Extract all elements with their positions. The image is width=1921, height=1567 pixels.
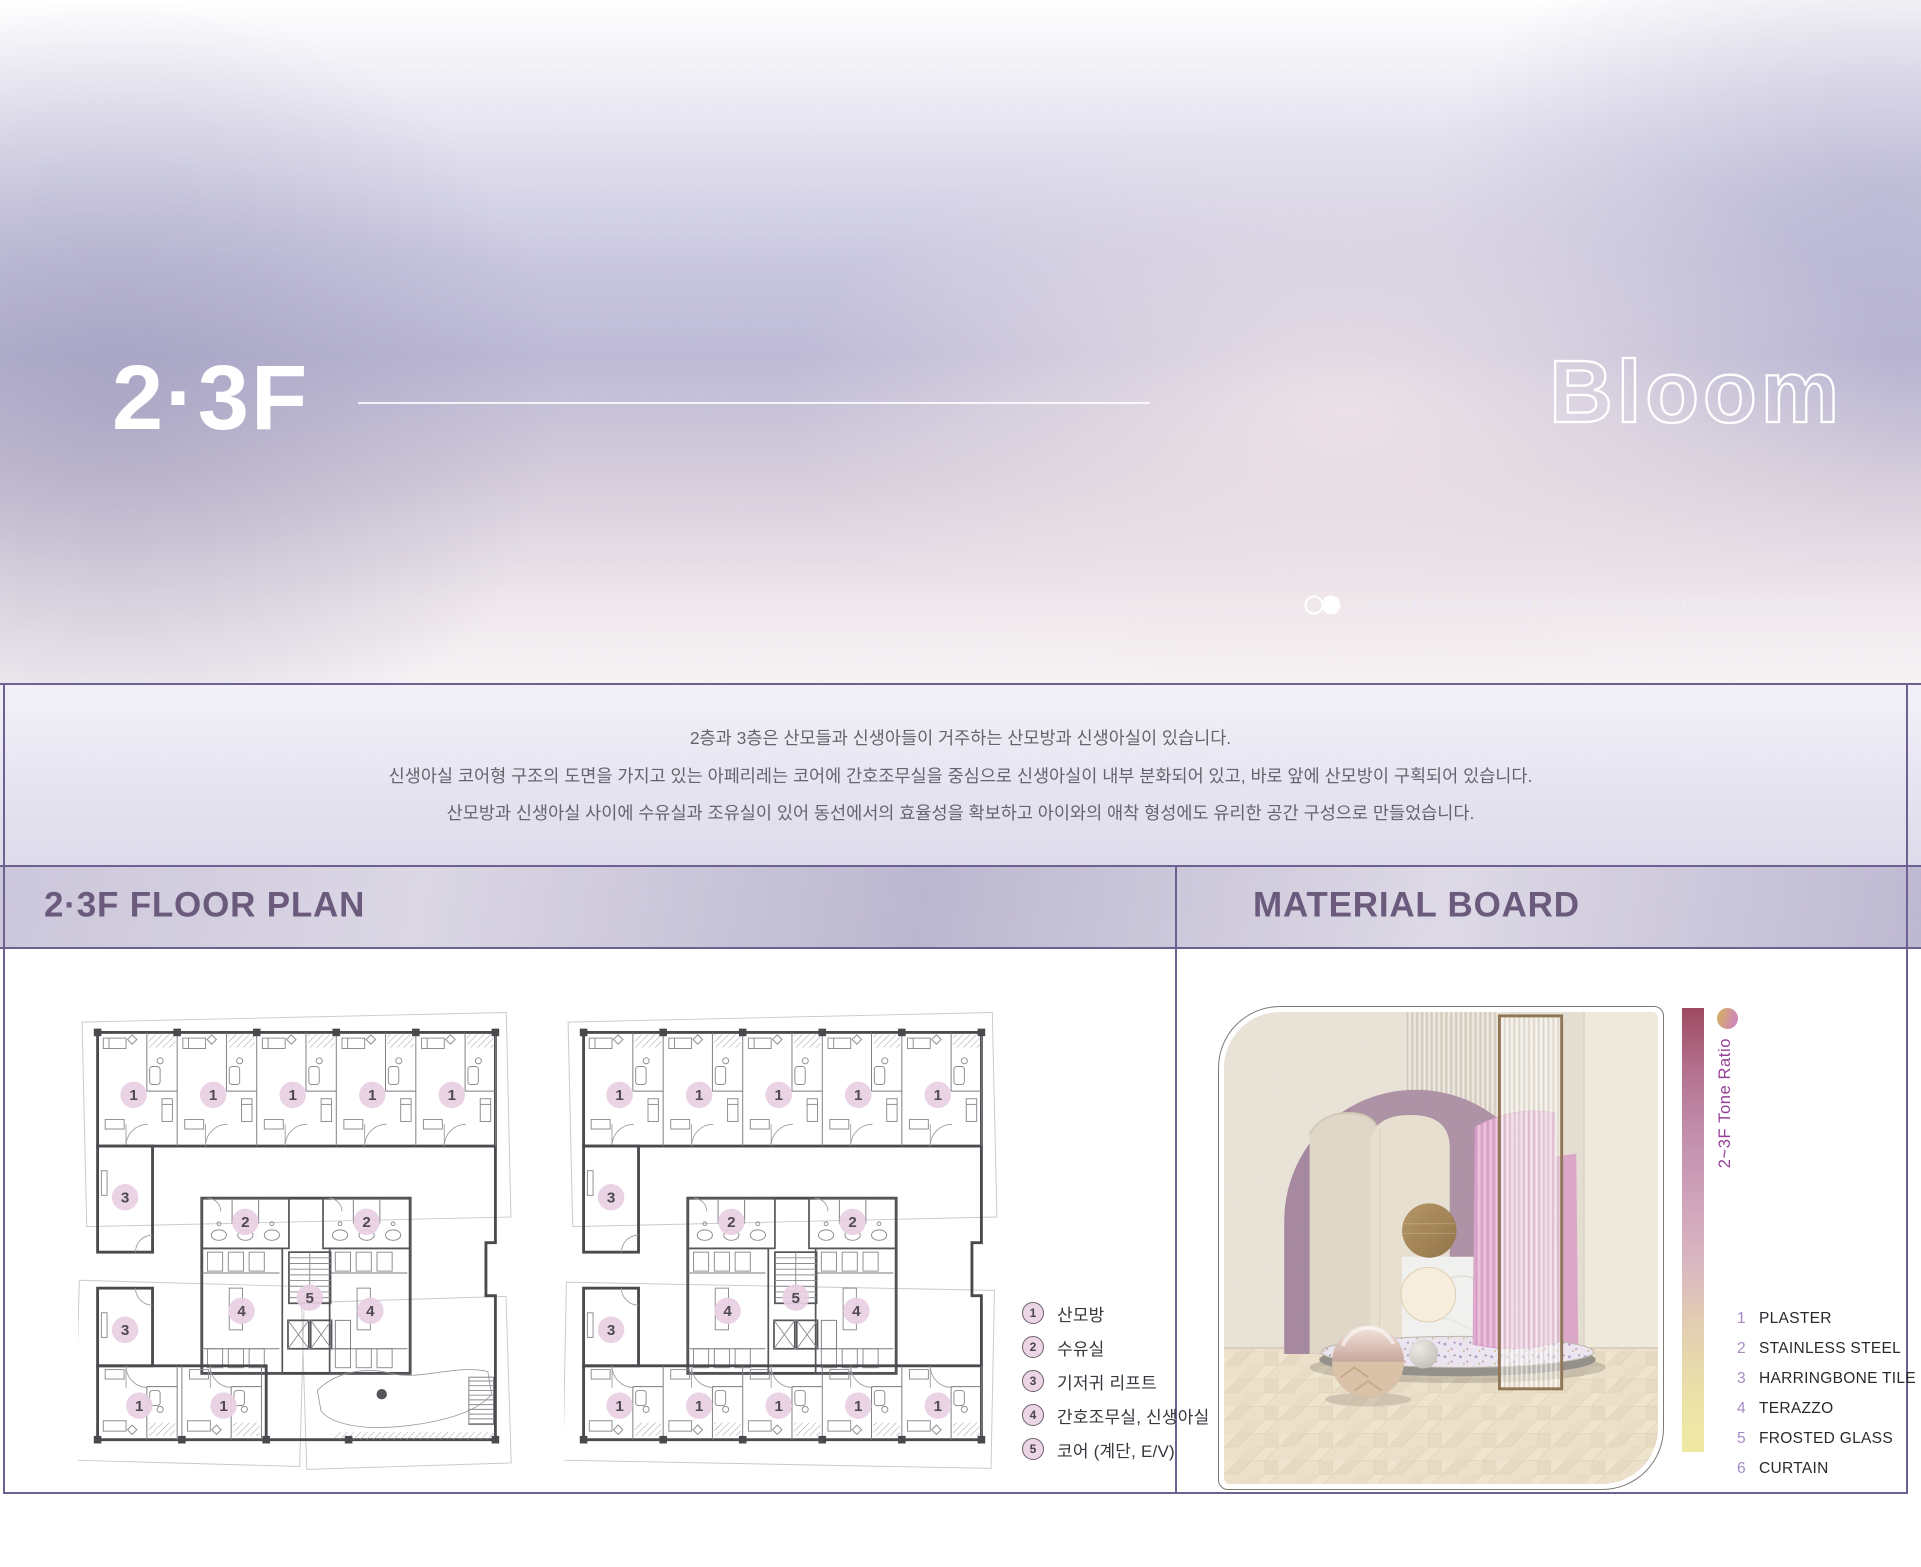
svg-text:3: 3 [607,1322,615,1339]
legend-number-badge: 3 [1022,1370,1044,1392]
tagline-text: FOR COMFORTABLE STAY TO MOTHERS AND BABI… [1369,595,1837,616]
legend-number-badge: 2 [1022,1336,1044,1358]
brand-wordmark: Bloom [1549,348,1843,436]
legend-item-5: 5 코어 (계단, E/V) [1022,1438,1209,1460]
tone-ratio-dot [1717,1008,1738,1029]
intro-paragraph: 2층과 3층은 산모들과 신생아들이 거주하는 산모방과 신생아실이 있습니다.… [0,685,1921,833]
material-number: 3 [1737,1370,1759,1388]
atrium-void [317,1370,491,1428]
tone-ratio-label: 2~3F Tone Ratio [1716,1038,1735,1168]
tone-ratio-bar [1682,1008,1704,1452]
material-item-3: 3 HARRINGBONE TILE [1737,1370,1916,1400]
svg-text:1: 1 [129,1087,137,1104]
title-divider-line [358,402,1150,404]
legend-item-3: 3 기저귀 리프트 [1022,1370,1209,1392]
svg-text:1: 1 [775,1398,783,1415]
svg-text:4: 4 [723,1303,732,1320]
material-item-2: 2 STAINLESS STEEL [1737,1340,1916,1370]
material-photo-frame [1218,1006,1664,1490]
svg-text:1: 1 [934,1398,942,1415]
svg-text:1: 1 [289,1087,297,1104]
legend-label: 산모방 [1057,1301,1105,1326]
legend-label: 간호조무실, 신생아실 [1057,1403,1209,1428]
material-number: 1 [1737,1310,1759,1328]
legend-number-badge: 5 [1022,1438,1044,1460]
svg-text:1: 1 [934,1087,942,1104]
material-item-1: 1 PLASTER [1737,1310,1916,1340]
plan-legend: 1 산모방2 수유실3 기저귀 리프트4 간호조무실, 신생아실5 코어 (계단… [1022,1302,1209,1472]
svg-text:3: 3 [121,1189,129,1206]
legend-item-2: 2 수유실 [1022,1336,1209,1358]
svg-text:2: 2 [241,1214,249,1231]
svg-text:1: 1 [448,1087,456,1104]
material-item-4: 4 TERAZZO [1737,1400,1916,1430]
svg-text:3: 3 [607,1189,615,1206]
svg-text:1: 1 [135,1398,143,1415]
legend-label: 코어 (계단, E/V) [1057,1437,1175,1462]
page-border-bottom [3,1492,1908,1494]
svg-text:1: 1 [219,1398,227,1415]
material-photo [1224,1012,1658,1484]
legend-label: 수유실 [1057,1335,1105,1360]
intro-line-2: 신생아실 코어형 구조의 도면을 가지고 있는 아페리레는 코어에 간호조무실을… [389,766,1533,786]
toggle-icon [1303,594,1347,616]
room-badges: 1 1 1 1 1 3 2 2 4 4 5 3 1 1 [112,1082,465,1419]
floor-plan-heading: 2·3F FLOOR PLAN [44,885,365,925]
floor-plan-3f: 1 1 1 1 1 3 2 2 4 4 5 3 1 1 1 1 1 [564,1004,1001,1470]
svg-text:1: 1 [615,1087,623,1104]
hero-banner: 2·3F Bloom FOR COMFORTABLE STAY TO MOTHE… [0,0,1921,683]
room-badges: 1 1 1 1 1 3 2 2 4 4 5 3 1 1 1 1 1 [598,1082,951,1419]
svg-text:4: 4 [852,1303,861,1320]
svg-text:3: 3 [121,1322,129,1339]
material-label: CURTAIN [1759,1460,1829,1478]
svg-text:2: 2 [362,1214,370,1231]
page: 2·3F Bloom FOR COMFORTABLE STAY TO MOTHE… [0,0,1921,1567]
right-wall [972,1146,981,1366]
material-label: FROSTED GLASS [1759,1430,1893,1448]
legend-number-badge: 4 [1022,1404,1044,1426]
svg-text:5: 5 [792,1290,800,1307]
materials-list: 1 PLASTER2 STAINLESS STEEL3 HARRINGBONE … [1737,1310,1916,1490]
material-photo-illustration [1224,1012,1658,1484]
svg-text:4: 4 [366,1303,375,1320]
material-label: PLASTER [1759,1310,1832,1328]
intro-line-3: 산모방과 신생아실 사이에 수유실과 조유실이 있어 동선에서의 효율성을 확보… [447,803,1475,823]
svg-text:1: 1 [854,1087,862,1104]
svg-text:2: 2 [727,1214,735,1231]
material-label: STAINLESS STEEL [1759,1340,1901,1358]
material-number: 5 [1737,1430,1759,1448]
intro-line-1: 2층과 3층은 산모들과 신생아들이 거주하는 산모방과 신생아실이 있습니다. [690,728,1231,748]
legend-item-4: 4 간호조무실, 신생아실 [1022,1404,1209,1426]
material-board-heading: MATERIAL BOARD [1253,885,1580,925]
tagline: FOR COMFORTABLE STAY TO MOTHERS AND BABI… [1303,594,1837,616]
floor-title: 2·3F [112,352,309,444]
material-number: 6 [1737,1460,1759,1478]
material-item-6: 6 CURTAIN [1737,1460,1916,1490]
mother-rooms-bottom [98,1366,267,1440]
svg-text:4: 4 [237,1303,246,1320]
floor-plan-2f: 1 1 1 1 1 3 2 2 4 4 5 3 1 1 [78,1004,515,1470]
page-border-left [3,683,5,1494]
material-number: 2 [1737,1340,1759,1358]
material-number: 4 [1737,1400,1759,1418]
material-label: HARRINGBONE TILE [1759,1370,1916,1388]
svg-text:1: 1 [775,1087,783,1104]
legend-number-badge: 1 [1022,1302,1044,1324]
svg-text:1: 1 [368,1087,376,1104]
svg-text:5: 5 [306,1290,314,1307]
material-label: TERAZZO [1759,1400,1833,1418]
legend-label: 기저귀 리프트 [1057,1369,1157,1394]
svg-text:1: 1 [695,1087,703,1104]
svg-text:1: 1 [695,1398,703,1415]
intro-band: 2층과 3층은 산모들과 신생아들이 거주하는 산모방과 신생아실이 있습니다.… [0,683,1921,865]
svg-text:2: 2 [848,1214,856,1231]
section-header-band: 2·3F FLOOR PLAN MATERIAL BOARD [0,865,1921,949]
svg-text:1: 1 [209,1087,217,1104]
svg-text:1: 1 [854,1398,862,1415]
legend-item-1: 1 산모방 [1022,1302,1209,1324]
material-item-5: 5 FROSTED GLASS [1737,1430,1916,1460]
svg-text:1: 1 [615,1398,623,1415]
